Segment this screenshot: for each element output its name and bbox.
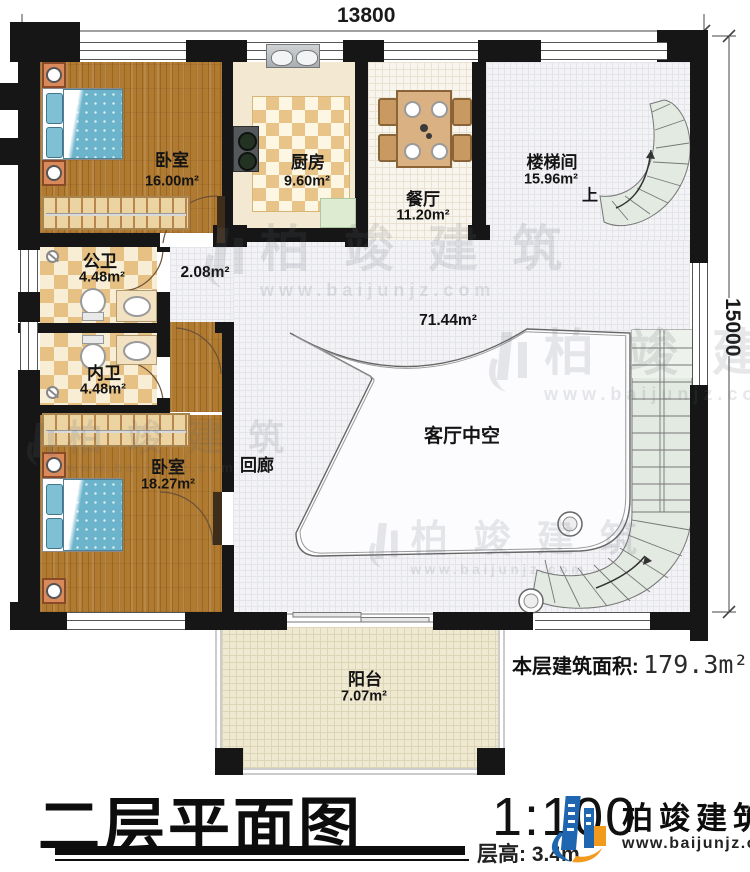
- wall: [472, 62, 486, 225]
- window: [20, 322, 38, 370]
- room-area-bath-public: 4.48m²: [79, 270, 125, 285]
- chair: [452, 134, 472, 162]
- sliding-door: [287, 613, 433, 623]
- room-area-closet: 2.08m²: [180, 265, 229, 281]
- dining-table: [396, 90, 452, 168]
- room-area-stairwell: 15.96m²: [524, 172, 578, 187]
- floor-area-note: 本层建筑面积: 179.3m²: [512, 650, 748, 679]
- wall: [186, 40, 247, 62]
- title-underline-thick: [55, 846, 465, 855]
- company-logo: 柏竣建筑 www.baijunjz.com: [538, 792, 750, 864]
- sink-basin: [123, 341, 151, 361]
- plate: [431, 101, 448, 118]
- kitchen-sink: [266, 44, 320, 68]
- chair: [378, 98, 398, 126]
- chair: [378, 134, 398, 162]
- window: [80, 42, 186, 60]
- wardrobe: [42, 196, 190, 230]
- room-label-stairwell: 楼梯间: [527, 154, 578, 172]
- shower-drain: [46, 250, 59, 263]
- floor-plan-page: 卧室 16.00m² 厨房 9.60m² 餐厅 11.20m² 楼梯间 15.9…: [0, 0, 750, 872]
- floor-area-label: 本层建筑面积:: [512, 656, 639, 678]
- wall: [468, 225, 490, 240]
- wall: [690, 30, 708, 263]
- wall: [355, 62, 368, 228]
- wall: [157, 292, 170, 357]
- wall: [157, 398, 170, 405]
- wall: [343, 40, 384, 62]
- nightstand: [42, 62, 66, 88]
- title-underline-thin: [55, 859, 469, 861]
- room-label-void: 客厅中空: [424, 427, 500, 447]
- window: [67, 612, 185, 630]
- wall-pilaster: [0, 83, 18, 110]
- room-area-void: 71.44m²: [419, 313, 477, 329]
- room-area-bath-private: 4.48m²: [80, 382, 126, 397]
- room-label-bath-public: 公卫: [83, 253, 117, 271]
- dimension-top: 13800: [333, 4, 399, 28]
- mattress: [63, 89, 123, 159]
- floor-area-value: 179.3m²: [643, 650, 748, 679]
- balcony-post: [477, 748, 505, 775]
- nightstand: [42, 578, 66, 604]
- dimension-right: 15000: [716, 298, 748, 356]
- door-leaf: [217, 196, 225, 243]
- wall: [222, 545, 234, 612]
- room-label-bedroom1: 卧室: [155, 152, 189, 170]
- sheet-fold: [64, 90, 86, 158]
- window: [535, 612, 650, 630]
- plate: [431, 143, 448, 160]
- plate: [404, 101, 421, 118]
- sink-basin: [123, 296, 151, 317]
- wall: [690, 385, 708, 612]
- window: [692, 263, 708, 385]
- pillow: [46, 93, 63, 124]
- burner: [238, 132, 257, 151]
- door-leaf: [213, 492, 222, 545]
- sink-basin: [271, 50, 293, 66]
- wall: [18, 323, 157, 333]
- window: [541, 42, 667, 60]
- room-label-bath-private: 内卫: [87, 365, 121, 383]
- wall: [18, 612, 67, 630]
- company-name: 柏竣建筑: [622, 803, 750, 836]
- door-arcs: [121, 196, 221, 545]
- straight-stairs: [632, 330, 692, 512]
- bed: [42, 478, 122, 552]
- pillow: [46, 518, 63, 549]
- room-label-bedroom2: 卧室: [151, 459, 185, 477]
- room-label-corridor: 回廊: [240, 457, 274, 475]
- wall: [433, 612, 533, 630]
- wall: [478, 40, 541, 62]
- chair: [452, 98, 472, 126]
- room-label-balcony: 阳台: [348, 671, 382, 689]
- wall: [18, 233, 160, 247]
- wall: [345, 225, 368, 247]
- nightstand: [42, 160, 66, 186]
- company-url: www.baijunjz.com: [622, 835, 750, 853]
- floor-height-label: 层高:: [477, 843, 526, 866]
- plate: [404, 143, 421, 160]
- window: [384, 42, 478, 60]
- window: [20, 250, 38, 292]
- mattress: [63, 479, 123, 551]
- toilet-tank: [82, 312, 104, 321]
- wall: [185, 612, 287, 630]
- room-area-kitchen: 9.60m²: [284, 174, 330, 189]
- burner: [238, 152, 257, 171]
- room-label-dining: 餐厅: [406, 191, 440, 209]
- kitchen-appliance: [320, 198, 356, 228]
- stove: [233, 126, 259, 172]
- stairs-up-label: 上: [582, 189, 598, 206]
- bed: [42, 88, 122, 160]
- wall: [690, 612, 708, 641]
- shower-drain: [46, 386, 59, 399]
- wall: [157, 247, 170, 252]
- room-area-dining: 11.20m²: [396, 208, 449, 223]
- balcony-post: [215, 748, 243, 775]
- sink-basin: [296, 50, 318, 66]
- room-label-kitchen: 厨房: [291, 154, 325, 172]
- toilet: [80, 288, 106, 315]
- room-area-bedroom2: 18.27m²: [141, 477, 195, 492]
- room-area-bedroom1: 16.00m²: [145, 174, 199, 189]
- wall-pilaster: [0, 138, 18, 165]
- wall: [18, 292, 40, 322]
- wall: [18, 40, 40, 250]
- pillow: [46, 127, 63, 158]
- teapot: [420, 124, 428, 132]
- company-logo-icon: [538, 792, 614, 864]
- wall: [222, 322, 234, 492]
- room-area-balcony: 7.07m²: [341, 689, 387, 704]
- nightstand: [42, 452, 66, 478]
- wardrobe: [42, 413, 190, 447]
- sheet-fold: [64, 480, 86, 550]
- sink-counter: [116, 335, 157, 365]
- teacup: [426, 133, 432, 139]
- sink-counter: [116, 290, 157, 322]
- pillow: [46, 484, 63, 515]
- fan-stairs: [600, 100, 690, 226]
